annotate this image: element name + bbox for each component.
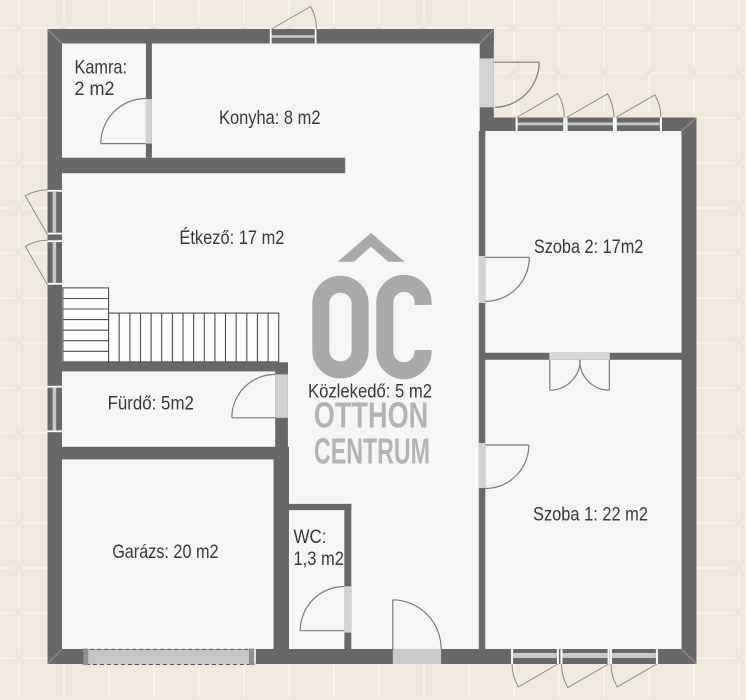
svg-text:Fürdő: 5m2: Fürdő: 5m2 [108,393,194,415]
svg-text:2 m2: 2 m2 [75,78,115,100]
svg-text:Kamra:: Kamra: [75,56,128,78]
svg-text:CENTRUM: CENTRUM [314,431,430,472]
svg-text:Szoba 2: 17m2: Szoba 2: 17m2 [534,236,643,258]
svg-text:Konyha: 8 m2: Konyha: 8 m2 [219,107,321,129]
svg-text:Étkező: 17 m2: Étkező: 17 m2 [179,226,284,249]
svg-text:WC:: WC: [294,526,327,548]
svg-text:1,3 m2: 1,3 m2 [294,548,345,570]
svg-text:Szoba 1: 22 m2: Szoba 1: 22 m2 [533,504,648,526]
svg-text:Garázs: 20 m2: Garázs: 20 m2 [112,541,218,563]
svg-text:Közlekedő: 5 m2: Közlekedő: 5 m2 [308,381,432,403]
